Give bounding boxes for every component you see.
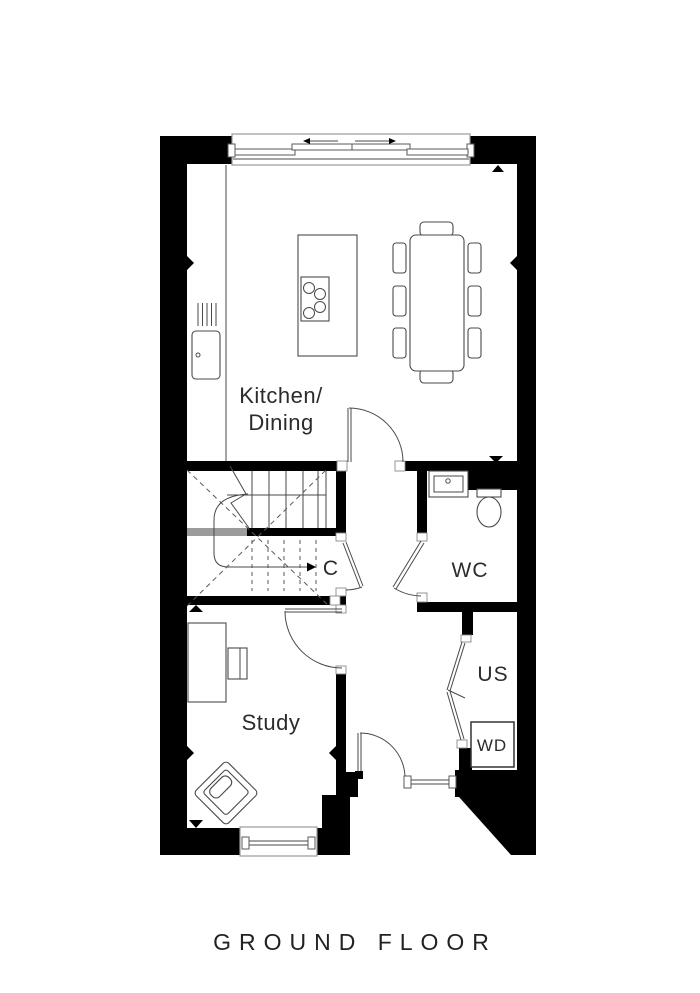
jamb <box>417 533 427 541</box>
sidelight-end-cap <box>404 776 411 788</box>
floor-title: GROUND FLOOR <box>213 929 497 955</box>
study-door <box>285 609 342 668</box>
wc-label: WC <box>452 559 489 582</box>
kitchen-sink <box>192 303 220 379</box>
dining-chair <box>468 243 481 273</box>
floor-plan-drawing: Kitchen/ Dining C WC Study US WD GROUND … <box>0 0 700 993</box>
wall-right <box>517 136 536 772</box>
stair-landing-highlight <box>187 528 247 536</box>
sliding-panel <box>407 149 468 155</box>
jamb <box>395 461 405 471</box>
wall-porch-block <box>322 795 350 855</box>
wall-kitchen-bottom-left <box>187 461 345 471</box>
jamb <box>417 593 427 602</box>
wall-us-stub-top <box>462 612 473 635</box>
us-label: US <box>477 663 508 686</box>
dining-table <box>410 235 464 371</box>
cupboard-label: C <box>323 557 339 580</box>
kitchen-island <box>298 235 357 356</box>
room-labels: Kitchen/ Dining C WC Study US WD <box>239 383 508 755</box>
sidelight-end-cap <box>449 776 456 788</box>
wall-wc-duct <box>467 461 517 490</box>
jamb <box>461 635 471 642</box>
armchair <box>193 760 258 825</box>
dining-chair <box>468 328 481 358</box>
wall-stairs-bottom <box>187 596 346 605</box>
triangle-marker-icon <box>329 746 336 760</box>
jamb <box>336 666 346 674</box>
desk-chair <box>228 648 247 679</box>
stair-break-line <box>230 466 249 528</box>
front-door-hinge-block <box>355 771 363 779</box>
triangle-marker-icon <box>187 746 194 760</box>
dining-chair <box>393 286 406 316</box>
wall-stair-stub <box>247 528 343 536</box>
jamb <box>336 533 346 541</box>
kitchen-dining-label-line2: Dining <box>248 410 313 435</box>
flight-overlap-line <box>187 470 330 607</box>
study-label: Study <box>242 710 301 735</box>
jamb <box>336 588 346 596</box>
dining-chair <box>393 243 406 273</box>
wall-bottom-left <box>160 828 240 855</box>
wd-label: WD <box>477 736 507 755</box>
dining-set <box>393 222 481 383</box>
kitchen-fittings <box>192 165 481 461</box>
sliding-panel <box>352 144 410 150</box>
triangle-marker-icon <box>510 256 517 270</box>
dining-chair <box>393 328 406 358</box>
wall-us-stub-bottom <box>459 748 472 772</box>
wc-door <box>393 541 424 596</box>
jamb <box>457 740 467 748</box>
jamb <box>337 461 347 471</box>
sliding-panel <box>292 144 352 150</box>
jamb <box>330 596 340 605</box>
triangle-marker-icon <box>189 820 203 828</box>
wc-basin <box>429 471 468 497</box>
toilet-bowl <box>477 497 501 527</box>
kitchen-dining-label-line1: Kitchen/ <box>239 383 323 408</box>
floor-plan-page: Kitchen/ Dining C WC Study US WD GROUND … <box>0 0 700 993</box>
kitchen-door <box>348 408 403 462</box>
triangle-marker-icon <box>189 605 203 612</box>
window-end-cap <box>242 837 249 849</box>
dining-chair <box>468 286 481 316</box>
study-window <box>240 827 317 856</box>
toilet-cistern <box>477 489 501 497</box>
window-end-cap <box>308 837 315 849</box>
desk <box>188 623 226 702</box>
wall-wc-bottom <box>417 602 517 612</box>
wall-left <box>160 136 187 855</box>
triangle-marker-icon <box>492 165 504 172</box>
patio-sliding-window <box>228 134 474 165</box>
wall-front-door-left <box>336 772 358 797</box>
window-end-cap <box>228 144 235 157</box>
sliding-panel <box>235 149 295 155</box>
dining-chair <box>420 222 453 236</box>
wall-wc-left <box>417 471 427 541</box>
wall-hall-lower <box>336 669 346 772</box>
staircase <box>187 466 330 607</box>
cupboard-door <box>343 542 363 590</box>
us-bifold-door <box>447 642 465 740</box>
front-door <box>358 733 456 788</box>
wall-chamfer-porch <box>455 770 536 855</box>
triangle-marker-icon <box>187 256 194 270</box>
